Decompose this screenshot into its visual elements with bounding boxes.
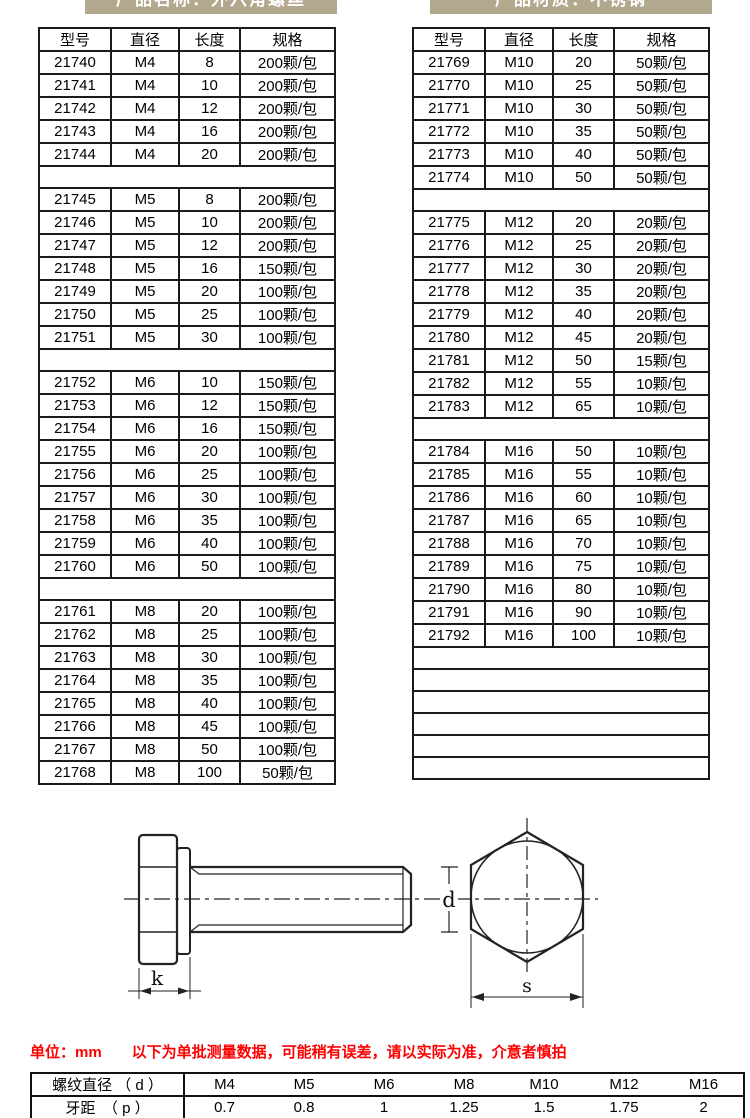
cell: 21776 (413, 234, 485, 257)
cell: M12 (485, 372, 553, 395)
cell: 35 (179, 509, 240, 532)
cell: M5 (111, 211, 179, 234)
separator-row (413, 418, 709, 440)
cell: M16 (485, 509, 553, 532)
table-row: 21754M616150颗/包 (39, 417, 335, 440)
cell: M6 (111, 371, 179, 394)
cell: 100颗/包 (240, 738, 335, 761)
cell: 21745 (39, 188, 111, 211)
cell: 40 (553, 143, 614, 166)
separator-row (39, 578, 335, 600)
cell: 40 (179, 532, 240, 555)
cell: 25 (179, 463, 240, 486)
cell: M6 (111, 486, 179, 509)
product-name-banner: 产品名称：外六角螺丝 (85, 0, 337, 14)
cell: 8 (179, 188, 240, 211)
table-row: 21746M510200颗/包 (39, 211, 335, 234)
cell: 21744 (39, 143, 111, 166)
cell: 20颗/包 (614, 257, 709, 280)
cell: 150颗/包 (240, 417, 335, 440)
table-row: 21769M102050颗/包 (413, 51, 709, 74)
cell: 45 (553, 326, 614, 349)
table-row: 21788M167010颗/包 (413, 532, 709, 555)
pitch-cell: 1 (344, 1096, 424, 1118)
table-row: 21777M123020颗/包 (413, 257, 709, 280)
cell: 30 (179, 646, 240, 669)
size-cell: M4 (184, 1073, 264, 1096)
cell: 100颗/包 (240, 555, 335, 578)
cell: 50 (179, 555, 240, 578)
table-row: 21759M640100颗/包 (39, 532, 335, 555)
cell: 100颗/包 (240, 509, 335, 532)
cell: 100 (553, 624, 614, 647)
table-row: 21748M516150颗/包 (39, 257, 335, 280)
cell: M12 (485, 234, 553, 257)
cell: 30 (553, 257, 614, 280)
cell: 10颗/包 (614, 624, 709, 647)
cell: 25 (553, 234, 614, 257)
column-header: 长度 (553, 28, 614, 51)
column-header: 型号 (413, 28, 485, 51)
table-row: 21762M825100颗/包 (39, 623, 335, 646)
cell: 21754 (39, 417, 111, 440)
separator-row (413, 691, 709, 713)
cell: 100颗/包 (240, 623, 335, 646)
cell: M16 (485, 532, 553, 555)
cell: 70 (553, 532, 614, 555)
cell: 100颗/包 (240, 715, 335, 738)
cell: 21749 (39, 280, 111, 303)
cell: 80 (553, 578, 614, 601)
cell: 10颗/包 (614, 578, 709, 601)
cell: 35 (179, 669, 240, 692)
cell: 50颗/包 (614, 51, 709, 74)
cell: 20颗/包 (614, 211, 709, 234)
spec-table-right: 型号直径长度规格21769M102050颗/包21770M102550颗/包21… (412, 27, 710, 780)
cell: 10 (179, 74, 240, 97)
cell: M16 (485, 578, 553, 601)
pitch-cell: 1.25 (424, 1096, 504, 1118)
blank-cell (413, 713, 709, 735)
cell: 21760 (39, 555, 111, 578)
table-row: 21761M820100颗/包 (39, 600, 335, 623)
cell: 40 (553, 303, 614, 326)
product-spec-sheet: 产品名称：外六角螺丝 产品材质：不锈钢 型号直径长度规格21740M48200颗… (0, 0, 750, 1118)
table-row: 21784M165010颗/包 (413, 440, 709, 463)
column-header: 型号 (39, 28, 111, 51)
cell: 50 (553, 440, 614, 463)
cell: M6 (111, 417, 179, 440)
cell: M4 (111, 74, 179, 97)
cell: 8 (179, 51, 240, 74)
header-row: 型号直径长度规格 (413, 28, 709, 51)
thread-pitch-table: 螺纹直径 （ d ） M4M5M6M8M10M12M16 牙距 （ p ） 0.… (30, 1072, 745, 1118)
size-cell: M12 (584, 1073, 664, 1096)
cell: 16 (179, 257, 240, 280)
table-row: 21743M416200颗/包 (39, 120, 335, 143)
separator-row (413, 713, 709, 735)
blank-cell (413, 691, 709, 713)
cell: 21743 (39, 120, 111, 143)
unit-disclaimer-note: 单位：mm 以下为单批测量数据，可能稍有误差，请以实际为准，介意者慎拍 (30, 1041, 750, 1062)
cell: 21773 (413, 143, 485, 166)
cell: M10 (485, 51, 553, 74)
cell: 10颗/包 (614, 440, 709, 463)
cell: M6 (111, 532, 179, 555)
cell: 21740 (39, 51, 111, 74)
cell: 21774 (413, 166, 485, 189)
diameter-row-label: 螺纹直径 （ d ） (31, 1073, 184, 1096)
cell: 12 (179, 394, 240, 417)
cell: 10颗/包 (614, 463, 709, 486)
cell: 21785 (413, 463, 485, 486)
dimension-label-s: s (522, 975, 532, 997)
cell: 21789 (413, 555, 485, 578)
cell: M6 (111, 463, 179, 486)
cell: 21764 (39, 669, 111, 692)
table-row: 21750M525100颗/包 (39, 303, 335, 326)
cell: 21750 (39, 303, 111, 326)
cell: 200颗/包 (240, 143, 335, 166)
product-material-banner: 产品材质：不锈钢 (430, 0, 712, 14)
cell: 20 (553, 211, 614, 234)
table-row: 21745M58200颗/包 (39, 188, 335, 211)
cell: M5 (111, 188, 179, 211)
cell: 21784 (413, 440, 485, 463)
cell: 50颗/包 (614, 143, 709, 166)
cell: M8 (111, 692, 179, 715)
size-cell: M10 (504, 1073, 584, 1096)
cell: 21780 (413, 326, 485, 349)
cell: M16 (485, 440, 553, 463)
pitch-cell: 2 (664, 1096, 744, 1118)
spec-table-left: 型号直径长度规格21740M48200颗/包21741M410200颗/包217… (38, 27, 336, 785)
cell: 10颗/包 (614, 555, 709, 578)
cell: 21761 (39, 600, 111, 623)
cell: 50 (179, 738, 240, 761)
table-row: 21774M105050颗/包 (413, 166, 709, 189)
blank-cell (413, 418, 709, 440)
cell: 21786 (413, 486, 485, 509)
cell: 21775 (413, 211, 485, 234)
table-row: 21792M1610010颗/包 (413, 624, 709, 647)
cell: M6 (111, 555, 179, 578)
cell: 21790 (413, 578, 485, 601)
table-row: 21772M103550颗/包 (413, 120, 709, 143)
cell: 25 (553, 74, 614, 97)
pitch-table-diameter-row: 螺纹直径 （ d ） M4M5M6M8M10M12M16 (31, 1073, 744, 1096)
table-row: 21773M104050颗/包 (413, 143, 709, 166)
cell: M10 (485, 120, 553, 143)
cell: 35 (553, 120, 614, 143)
cell: 12 (179, 234, 240, 257)
cell: 21769 (413, 51, 485, 74)
table-row: 21755M620100颗/包 (39, 440, 335, 463)
column-header: 直径 (485, 28, 553, 51)
cell: 20 (179, 143, 240, 166)
table-row: 21749M520100颗/包 (39, 280, 335, 303)
cell: M16 (485, 601, 553, 624)
cell: 15颗/包 (614, 349, 709, 372)
table-row: 21785M165510颗/包 (413, 463, 709, 486)
separator-row (413, 647, 709, 669)
cell: 21762 (39, 623, 111, 646)
blank-cell (413, 189, 709, 211)
cell: 100颗/包 (240, 646, 335, 669)
cell: 50 (553, 166, 614, 189)
cell: 12 (179, 97, 240, 120)
cell: 20颗/包 (614, 234, 709, 257)
cell: 100颗/包 (240, 669, 335, 692)
cell: 21772 (413, 120, 485, 143)
table-row: 21790M168010颗/包 (413, 578, 709, 601)
table-row: 21766M845100颗/包 (39, 715, 335, 738)
cell: 50 (553, 349, 614, 372)
cell: 200颗/包 (240, 188, 335, 211)
cell: 20 (179, 280, 240, 303)
cell: 21770 (413, 74, 485, 97)
cell: 21781 (413, 349, 485, 372)
cell: M4 (111, 143, 179, 166)
pitch-table-pitch-row: 牙距 （ p ） 0.70.811.251.51.752 (31, 1096, 744, 1118)
cell: 21788 (413, 532, 485, 555)
cell: 30 (179, 486, 240, 509)
table-row: 21782M125510颗/包 (413, 372, 709, 395)
cell: M8 (111, 623, 179, 646)
cell: 21779 (413, 303, 485, 326)
table-row: 21775M122020颗/包 (413, 211, 709, 234)
table-row: 21758M635100颗/包 (39, 509, 335, 532)
size-cell: M16 (664, 1073, 744, 1096)
cell: M12 (485, 280, 553, 303)
table-row: 21757M630100颗/包 (39, 486, 335, 509)
cell: M16 (485, 486, 553, 509)
cell: M12 (485, 257, 553, 280)
cell: 50颗/包 (614, 120, 709, 143)
separator-row (413, 757, 709, 779)
cell: M4 (111, 97, 179, 120)
table-row: 21786M166010颗/包 (413, 486, 709, 509)
cell: M4 (111, 120, 179, 143)
pitch-cell: 0.8 (264, 1096, 344, 1118)
cell: M12 (485, 395, 553, 418)
cell: 150颗/包 (240, 257, 335, 280)
cell: 20颗/包 (614, 326, 709, 349)
column-header: 规格 (240, 28, 335, 51)
table-row: 21752M610150颗/包 (39, 371, 335, 394)
table-row: 21779M124020颗/包 (413, 303, 709, 326)
cell: 21778 (413, 280, 485, 303)
separator-row (413, 669, 709, 691)
cell: 21747 (39, 234, 111, 257)
cell: 65 (553, 509, 614, 532)
cell: 21752 (39, 371, 111, 394)
size-cell: M8 (424, 1073, 504, 1096)
table-row: 21789M167510颗/包 (413, 555, 709, 578)
cell: M5 (111, 326, 179, 349)
cell: 200颗/包 (240, 51, 335, 74)
cell: 75 (553, 555, 614, 578)
table-row: 21740M48200颗/包 (39, 51, 335, 74)
cell: 55 (553, 372, 614, 395)
cell: 45 (179, 715, 240, 738)
dimension-label-k: k (151, 966, 164, 990)
cell: 20颗/包 (614, 303, 709, 326)
cell: M16 (485, 555, 553, 578)
cell: 21767 (39, 738, 111, 761)
cell: 100颗/包 (240, 303, 335, 326)
table-row: 21751M530100颗/包 (39, 326, 335, 349)
pitch-cell: 1.75 (584, 1096, 664, 1118)
cell: 10颗/包 (614, 372, 709, 395)
cell: M6 (111, 509, 179, 532)
cell: 21741 (39, 74, 111, 97)
cell: M6 (111, 394, 179, 417)
bolt-technical-drawing: d s k (0, 780, 750, 1040)
table-row: 21771M103050颗/包 (413, 97, 709, 120)
table-row: 21780M124520颗/包 (413, 326, 709, 349)
cell: M4 (111, 51, 179, 74)
cell: 200颗/包 (240, 234, 335, 257)
cell: 100颗/包 (240, 692, 335, 715)
cell: 21759 (39, 532, 111, 555)
blank-cell (413, 757, 709, 779)
cell: 10颗/包 (614, 509, 709, 532)
table-row: 21764M835100颗/包 (39, 669, 335, 692)
header-row: 型号直径长度规格 (39, 28, 335, 51)
cell: 100颗/包 (240, 326, 335, 349)
cell: 21792 (413, 624, 485, 647)
separator-row (413, 189, 709, 211)
cell: M8 (111, 600, 179, 623)
cell: 200颗/包 (240, 74, 335, 97)
pitch-cell: 0.7 (184, 1096, 264, 1118)
pitch-row-label: 牙距 （ p ） (31, 1096, 184, 1118)
cell: 21765 (39, 692, 111, 715)
cell: M12 (485, 303, 553, 326)
blank-cell (39, 166, 335, 188)
cell: 150颗/包 (240, 394, 335, 417)
table-row: 21767M850100颗/包 (39, 738, 335, 761)
table-row: 21744M420200颗/包 (39, 143, 335, 166)
cell: 200颗/包 (240, 97, 335, 120)
cell: M10 (485, 74, 553, 97)
cell: 100颗/包 (240, 486, 335, 509)
cell: 40 (179, 692, 240, 715)
table-row: 21760M650100颗/包 (39, 555, 335, 578)
separator-row (39, 166, 335, 188)
cell: M5 (111, 257, 179, 280)
cell: M5 (111, 303, 179, 326)
separator-row (39, 349, 335, 371)
cell: 10 (179, 371, 240, 394)
bolt-flange (177, 848, 190, 954)
cell: 21746 (39, 211, 111, 234)
cell: M6 (111, 440, 179, 463)
table-row: 21787M166510颗/包 (413, 509, 709, 532)
cell: 20颗/包 (614, 280, 709, 303)
blank-cell (413, 647, 709, 669)
cell: 10颗/包 (614, 532, 709, 555)
cell: M12 (485, 211, 553, 234)
cell: M8 (111, 669, 179, 692)
table-row: 21778M123520颗/包 (413, 280, 709, 303)
cell: 21756 (39, 463, 111, 486)
cell: M8 (111, 646, 179, 669)
cell: 16 (179, 417, 240, 440)
cell: M16 (485, 624, 553, 647)
cell: 100颗/包 (240, 440, 335, 463)
cell: 10颗/包 (614, 486, 709, 509)
cell: 90 (553, 601, 614, 624)
column-header: 规格 (614, 28, 709, 51)
cell: 21757 (39, 486, 111, 509)
table-row: 21753M612150颗/包 (39, 394, 335, 417)
cell: 21787 (413, 509, 485, 532)
cell: 21751 (39, 326, 111, 349)
cell: 200颗/包 (240, 211, 335, 234)
cell: 25 (179, 623, 240, 646)
cell: M8 (111, 738, 179, 761)
cell: 100颗/包 (240, 463, 335, 486)
blank-cell (39, 349, 335, 371)
cell: M10 (485, 97, 553, 120)
blank-cell (39, 578, 335, 600)
separator-row (413, 735, 709, 757)
cell: 55 (553, 463, 614, 486)
cell: 10颗/包 (614, 395, 709, 418)
cell: 20 (179, 440, 240, 463)
blank-cell (413, 735, 709, 757)
cell: M10 (485, 143, 553, 166)
cell: 16 (179, 120, 240, 143)
table-row: 21791M169010颗/包 (413, 601, 709, 624)
cell: 10 (179, 211, 240, 234)
cell: 21742 (39, 97, 111, 120)
table-row: 21776M122520颗/包 (413, 234, 709, 257)
cell: M16 (485, 463, 553, 486)
cell: M5 (111, 280, 179, 303)
pitch-cell: 1.5 (504, 1096, 584, 1118)
dimension-label-d: d (442, 888, 455, 912)
cell: 21755 (39, 440, 111, 463)
cell: 65 (553, 395, 614, 418)
cell: 21748 (39, 257, 111, 280)
table-row: 21741M410200颗/包 (39, 74, 335, 97)
cell: 200颗/包 (240, 120, 335, 143)
table-row: 21783M126510颗/包 (413, 395, 709, 418)
cell: 150颗/包 (240, 371, 335, 394)
cell: 20 (553, 51, 614, 74)
cell: 50颗/包 (614, 166, 709, 189)
table-row: 21781M125015颗/包 (413, 349, 709, 372)
cell: 21771 (413, 97, 485, 120)
cell: M8 (111, 715, 179, 738)
cell: 21753 (39, 394, 111, 417)
cell: 10颗/包 (614, 601, 709, 624)
cell: 21763 (39, 646, 111, 669)
cell: M12 (485, 349, 553, 372)
cell: 100颗/包 (240, 532, 335, 555)
cell: 21758 (39, 509, 111, 532)
cell: 21777 (413, 257, 485, 280)
cell: 20 (179, 600, 240, 623)
cell: 50颗/包 (614, 74, 709, 97)
cell: 21782 (413, 372, 485, 395)
table-row: 21770M102550颗/包 (413, 74, 709, 97)
cell: 21783 (413, 395, 485, 418)
cell: M12 (485, 326, 553, 349)
